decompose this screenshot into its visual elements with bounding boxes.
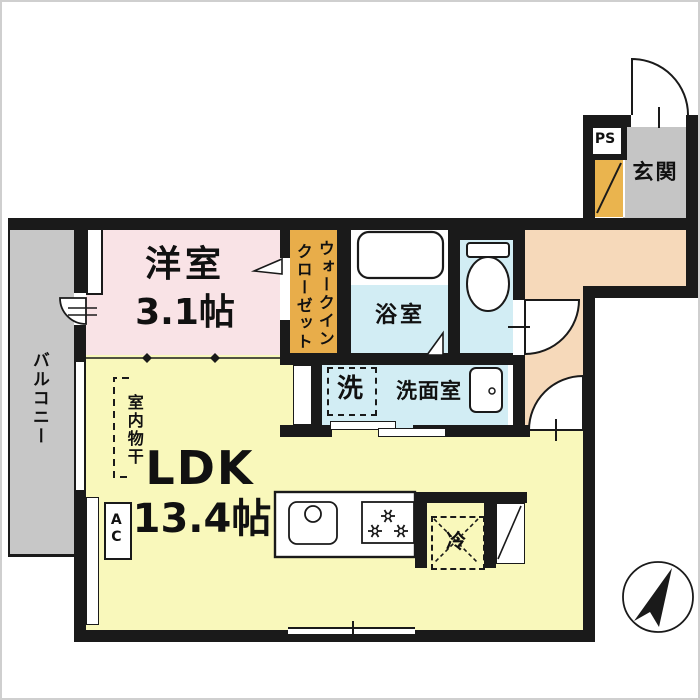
pillar (86, 228, 103, 295)
window-balcony (74, 362, 86, 490)
wall (280, 230, 290, 258)
room-hallway-lower (518, 226, 586, 436)
wall (583, 286, 698, 298)
label-wic-line2: クローゼット (294, 235, 311, 359)
label-ldk: LDK (125, 443, 275, 493)
window-south (288, 627, 415, 636)
bathtub-zone (349, 228, 449, 285)
label-entrance: 玄関 (623, 158, 688, 186)
label-wic-line1: ウォークイン (316, 232, 333, 356)
wall (583, 298, 595, 642)
door-gap (74, 293, 86, 325)
label-ldk-size: 13.4帖 (112, 496, 292, 542)
door-gap (513, 300, 525, 355)
wall (513, 230, 525, 300)
wall (280, 425, 332, 437)
label-washer: 洗 (327, 367, 373, 412)
wall (74, 490, 86, 642)
floorplan: 洋室 3.1帖 ウォークイン クローゼット 浴室 洗 洗面室 LDK 13.4帖… (0, 0, 700, 700)
pillar (86, 497, 99, 625)
label-washroom: 洗面室 (376, 378, 482, 404)
wall (513, 355, 525, 433)
label-indoor-drying: 室内物干 (125, 384, 142, 476)
label-balcony: バルコニー (29, 332, 47, 464)
label-bathroom: 浴室 (352, 302, 448, 330)
sliding-door-panel (378, 428, 446, 437)
label-fridge: 冷 (431, 516, 481, 566)
compass-needle-icon (634, 568, 672, 627)
pillar (293, 365, 312, 425)
room-toilet (458, 235, 516, 357)
storage-closet (496, 503, 525, 564)
wall (74, 230, 86, 293)
wall (415, 492, 527, 503)
wall (8, 218, 698, 230)
label-western-room: 洋室 (105, 244, 265, 286)
label-ac: AC (106, 504, 126, 554)
wall (448, 230, 525, 240)
wall (484, 503, 496, 568)
wall (415, 492, 427, 568)
entrance-door-arc (632, 59, 688, 115)
shoe-cabinet (595, 160, 625, 217)
wall (337, 230, 351, 357)
wall (448, 230, 460, 363)
label-pipe-space: PS (591, 126, 619, 152)
wall (74, 325, 86, 362)
compass-circle (623, 562, 693, 632)
door-gap (280, 258, 290, 320)
label-western-room-size: 3.1帖 (105, 292, 265, 334)
wall (280, 320, 290, 357)
